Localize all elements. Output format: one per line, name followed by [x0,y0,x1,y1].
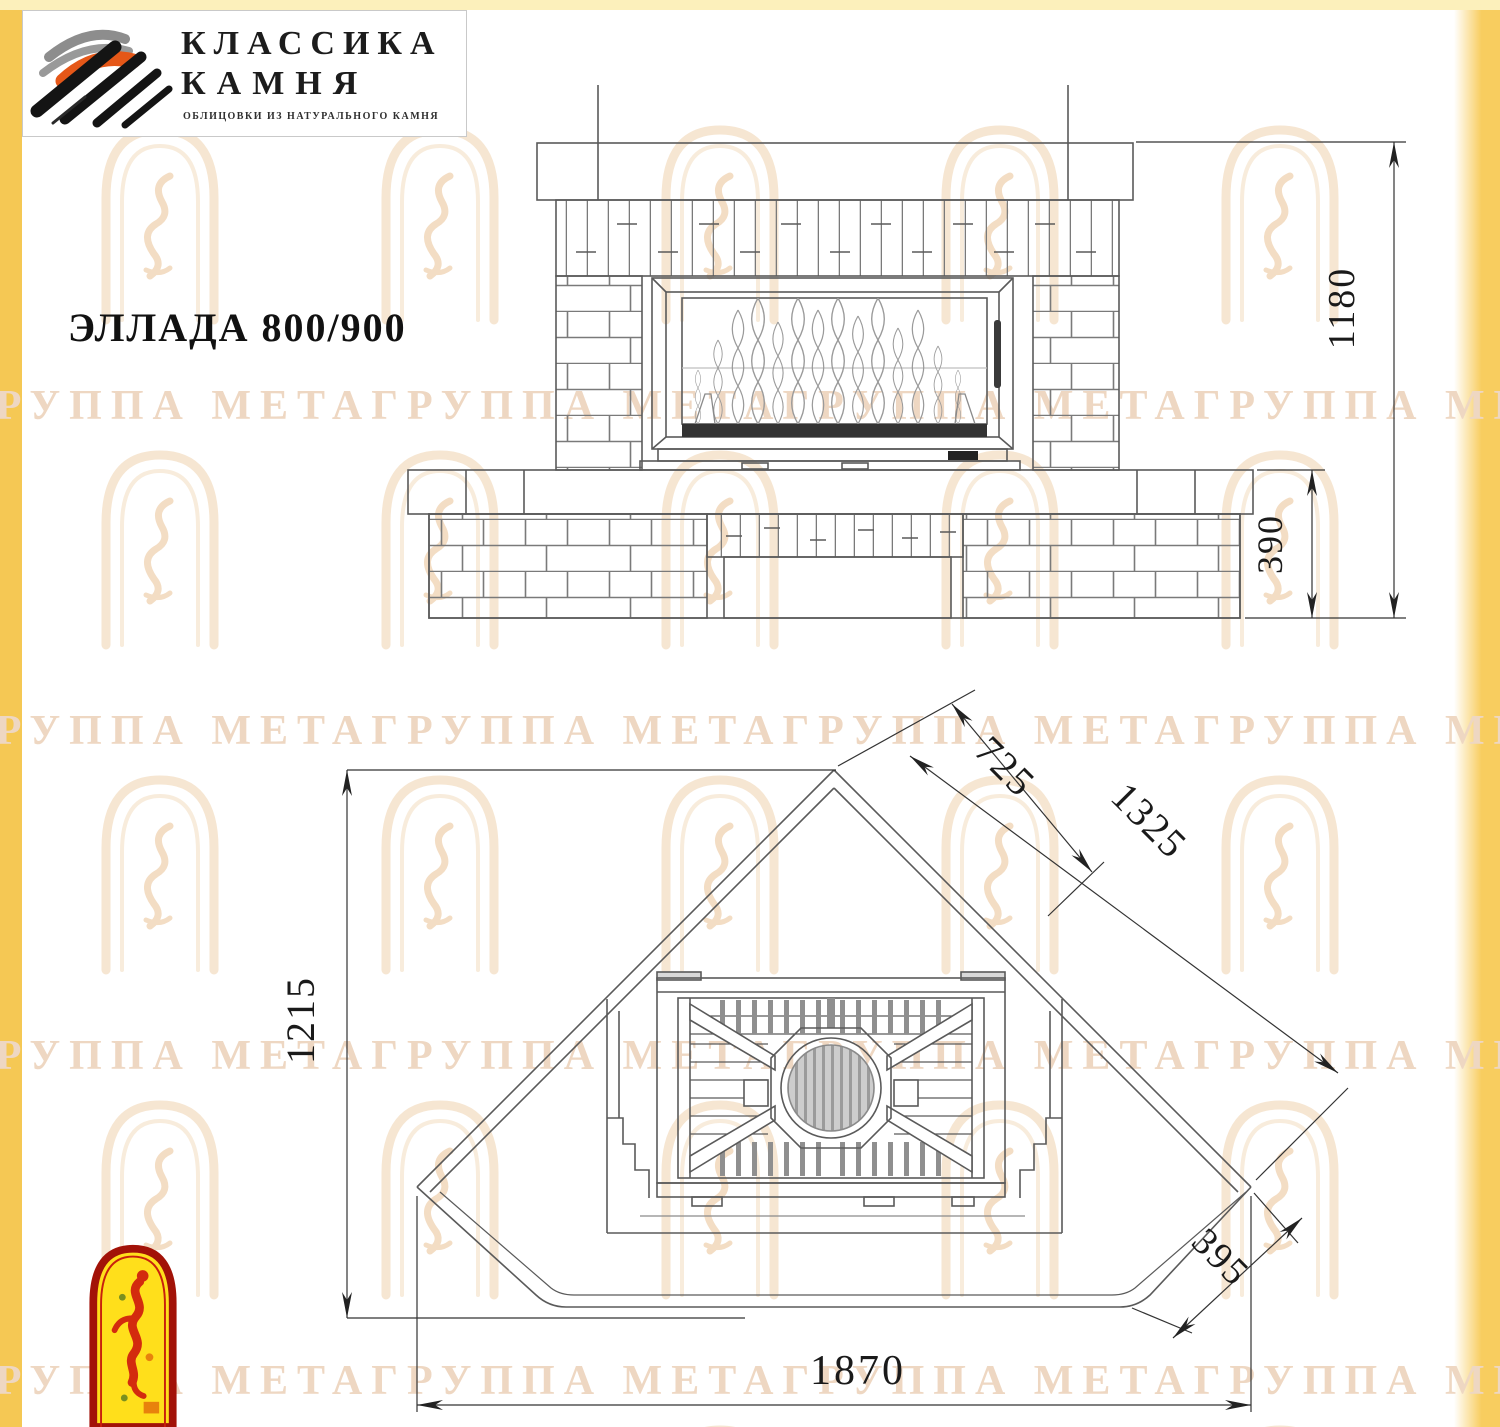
firebox-insert-plan [657,972,1005,1206]
plan-view: 1215 725 1325 395 1870 [278,690,1348,1412]
front-view: 1180 390 [408,85,1406,618]
brand-title-line1: КЛАССИКА [181,25,443,63]
grate-bar [682,424,987,437]
right-pier [1033,276,1119,470]
dim-label-390: 390 [1250,514,1290,574]
dim-label-1215: 1215 [278,976,323,1064]
brand-mark-icon [29,15,179,130]
mantel-shelf [537,143,1133,200]
stone-base [429,514,1240,618]
brand-title-line2: КАМНЯ [181,65,368,103]
flame-decor [682,298,987,424]
dim-label-1180: 1180 [1321,267,1363,350]
dim-label-1870: 1870 [810,1348,906,1394]
brick-frieze [556,200,1119,276]
base-front-edge [417,1187,1251,1307]
dim-label-725: 725 [966,727,1044,805]
firebird-logo-icon [88,1243,178,1427]
left-pier [556,276,642,470]
brand-subtitle: ОБЛИЦОВКИ ИЗ НАТУРАЛЬНОГО КАМНЯ [183,111,439,122]
brand-logo: КЛАССИКА КАМНЯ ОБЛИЦОВКИ ИЗ НАТУРАЛЬНОГО… [22,10,467,137]
page-title: ЭЛЛАДА 800/900 [68,304,407,351]
dim-firebox-width [838,690,1104,916]
hearth-shelf [408,470,1253,514]
technical-drawing: 1180 390 [0,0,1500,1427]
dim-label-395: 395 [1183,1220,1257,1294]
base-recess [724,557,951,618]
dim-label-1325: 1325 [1103,773,1197,867]
ash-latch [948,451,978,460]
door-handle [994,320,1001,388]
firebox-insert-front [640,278,1020,470]
